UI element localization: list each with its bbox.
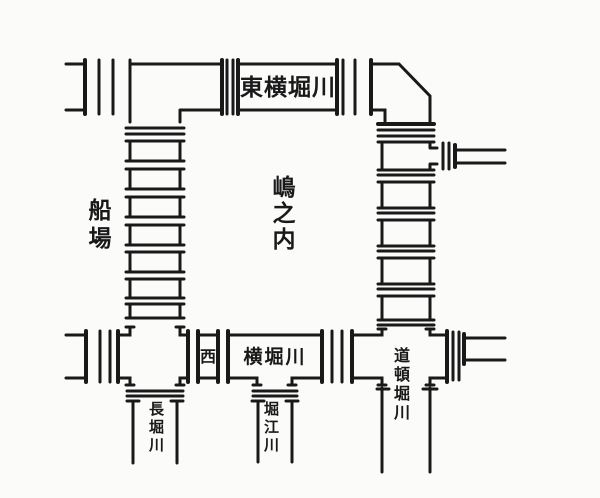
cross-junction-outline bbox=[118, 327, 188, 396]
canal-label-higashi-yokobori: 東横堀川 bbox=[239, 66, 337, 110]
canal-label-nishi: 西 bbox=[197, 336, 219, 378]
left-canal-outline bbox=[126, 128, 184, 318]
district-label-senba: 船場 bbox=[86, 198, 109, 254]
canal-label-dotonbori: 道頓堀川 bbox=[392, 347, 408, 423]
right-canal-outline bbox=[378, 130, 505, 325]
canal-label-horie: 堀江川 bbox=[263, 401, 278, 455]
district-label-shimanouchi: 嶋之内 bbox=[270, 175, 293, 253]
historical-canal-map: 東横堀川 船場 嶋之内 西 横堀川 長堀川 堀江川 道頓堀川 bbox=[0, 0, 600, 498]
canal-label-nagahori: 長堀川 bbox=[148, 401, 163, 455]
canal-label-yokobori: 横堀川 bbox=[230, 338, 320, 376]
river-junction-outline bbox=[352, 329, 505, 385]
